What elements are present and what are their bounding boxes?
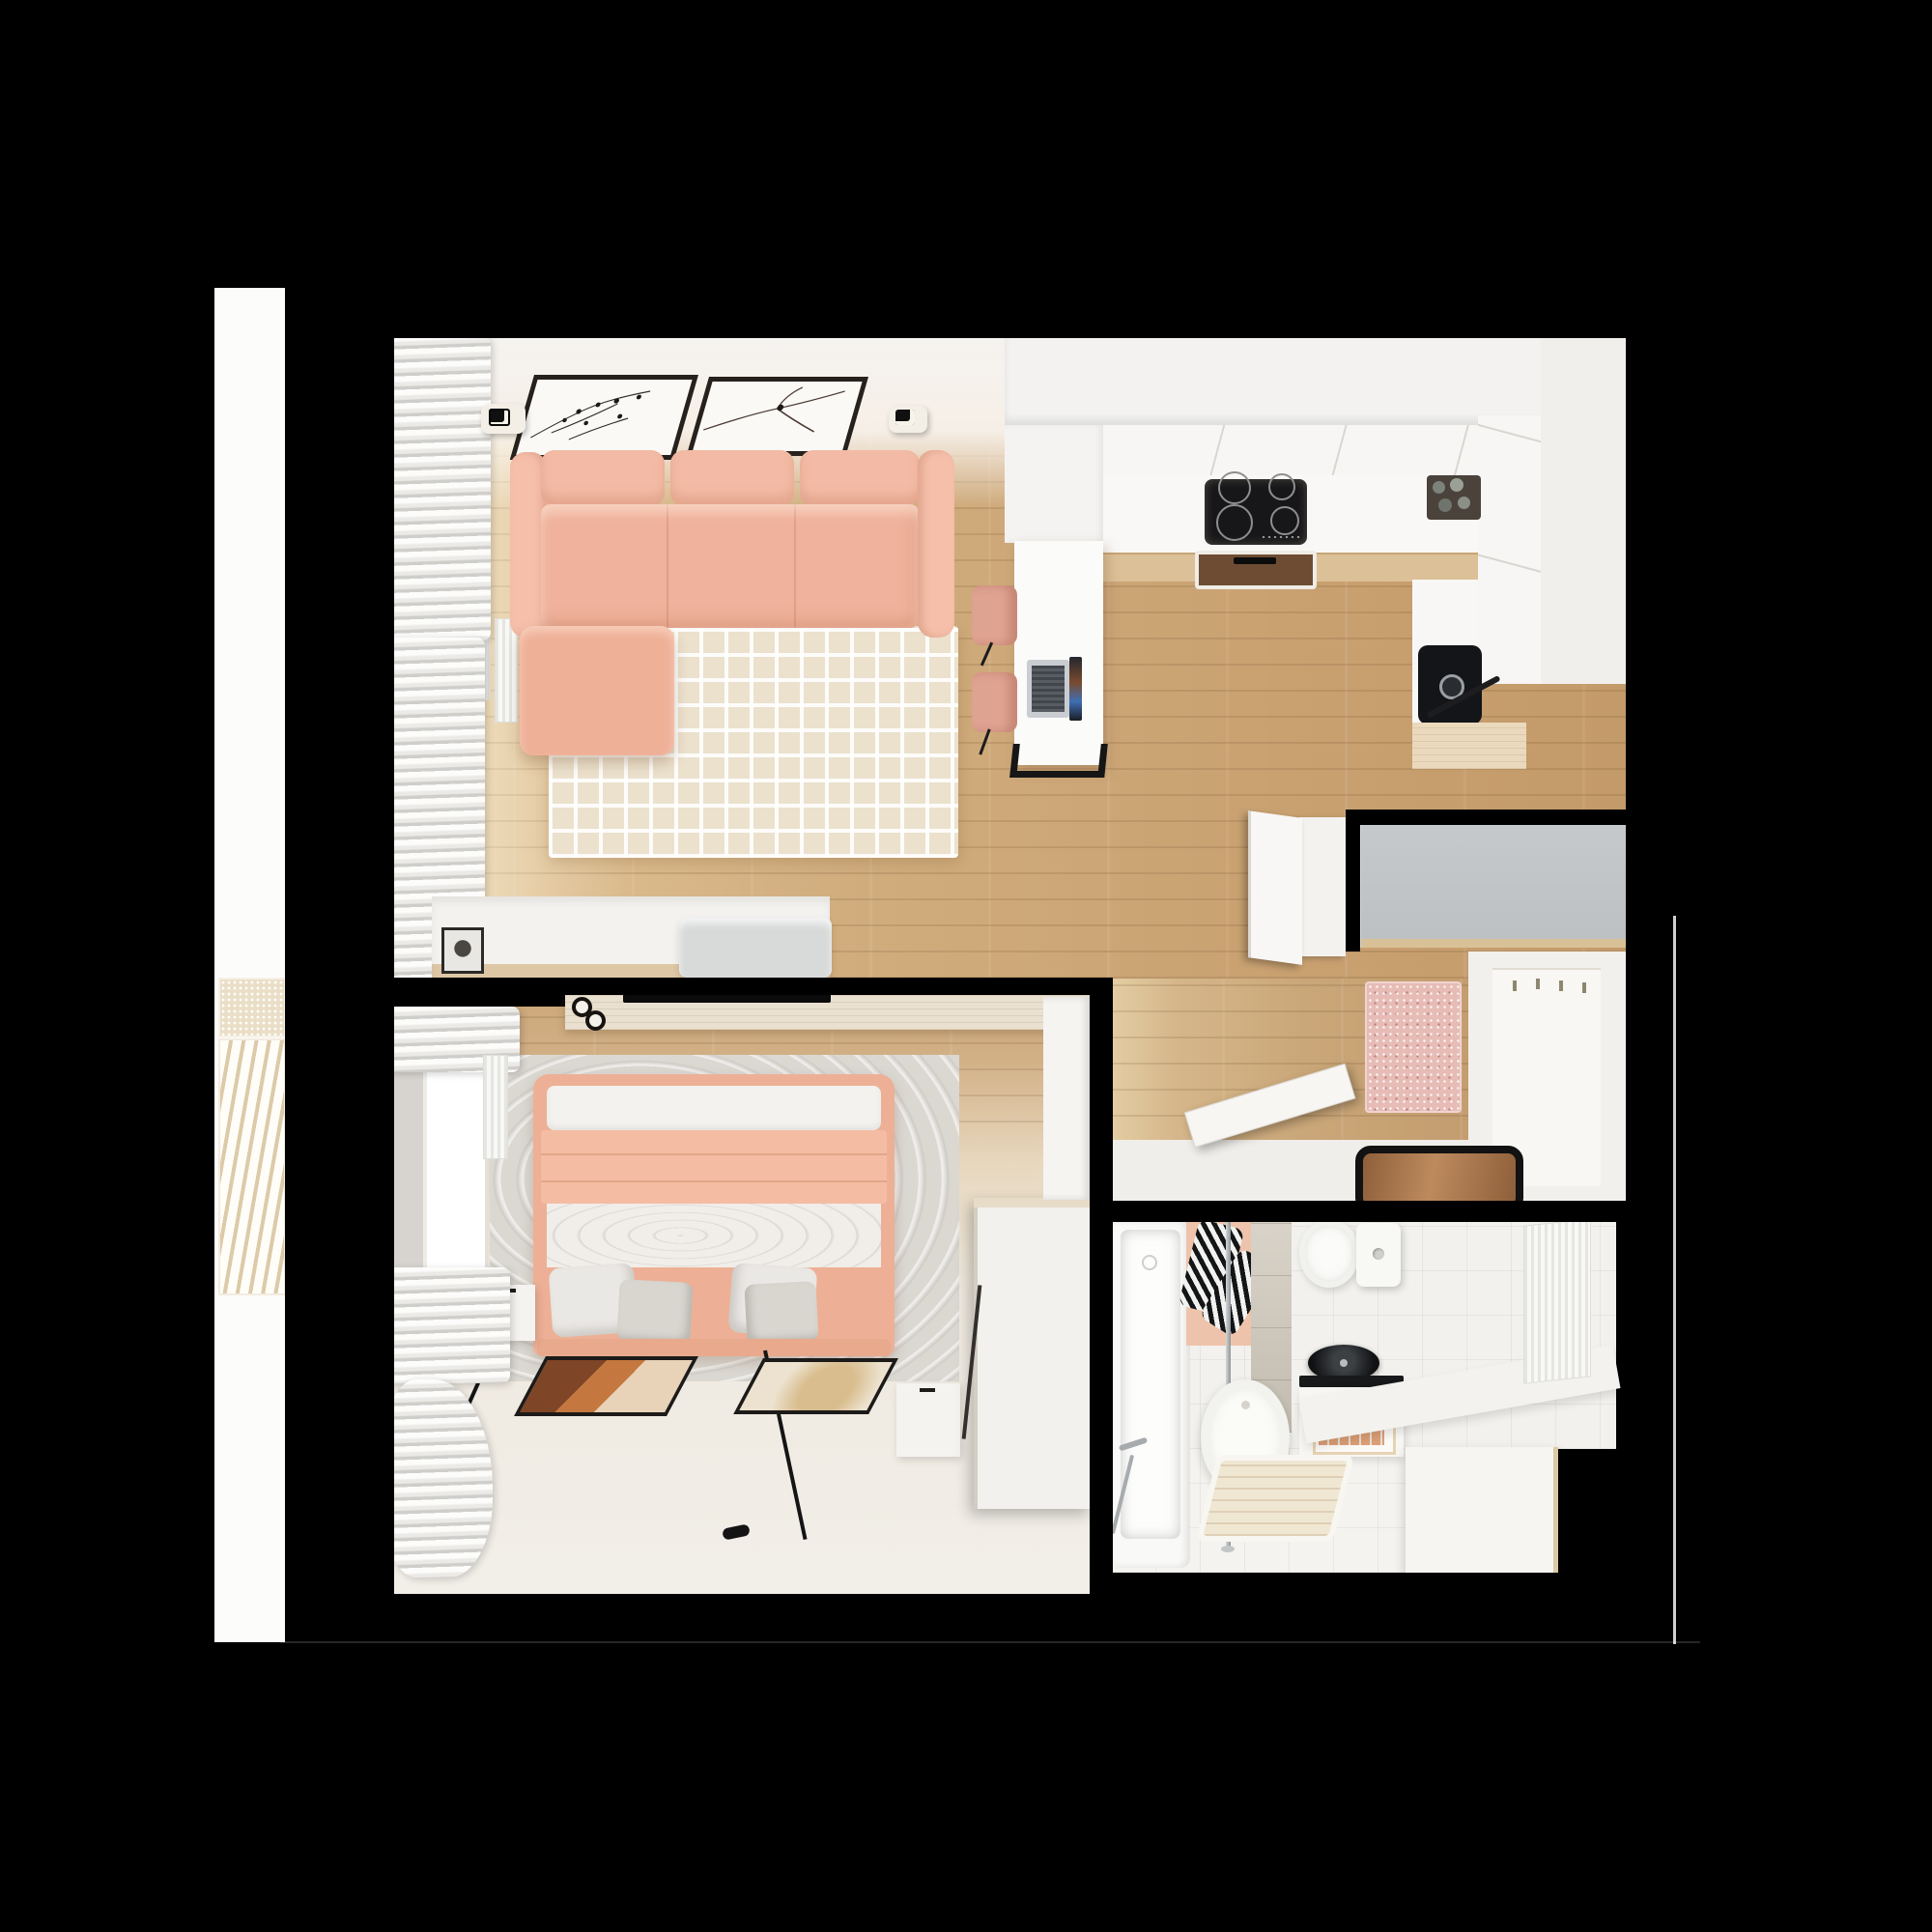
wall-art-birds <box>510 375 698 460</box>
flush-button <box>1373 1248 1384 1260</box>
bathtub-basin <box>1121 1230 1180 1539</box>
induction-cooktop <box>1205 479 1307 545</box>
kitchen-right-fronts <box>1478 415 1541 684</box>
cooktop-controls <box>1261 535 1301 539</box>
bedroom-window <box>390 1053 489 1280</box>
peninsula-tall-unit <box>1005 425 1103 543</box>
laptop-screen <box>1069 657 1082 721</box>
burner-3 <box>1216 504 1253 541</box>
hall-cabinet <box>1299 817 1346 956</box>
burner-4 <box>1270 506 1299 535</box>
bedroom-wardrobe <box>974 1198 1092 1509</box>
wall-right <box>1626 285 1655 1642</box>
jar-3 <box>1438 498 1452 512</box>
chair-hole <box>1241 1401 1250 1409</box>
floor-art-terracotta <box>514 1356 698 1416</box>
sofa-back-cushion-2 <box>670 450 794 506</box>
sofa-chaise <box>520 626 674 755</box>
extractor-slot <box>1234 557 1276 564</box>
bed-mattress-top <box>547 1086 881 1130</box>
sink-cabinet-front <box>1412 723 1526 769</box>
corner-tray <box>1427 475 1481 520</box>
coat-hook-1 <box>1513 980 1517 991</box>
balcony-slat-screen <box>218 1038 286 1295</box>
jar-1 <box>1433 481 1445 494</box>
frame-line-horizontal <box>280 1641 1700 1643</box>
coat-hook-4 <box>1582 982 1586 993</box>
shower-pole-foot <box>1221 1546 1235 1552</box>
wall-closet-top <box>1346 810 1626 825</box>
balcony-floor <box>214 288 287 1642</box>
gray-top-closet <box>1359 824 1626 948</box>
candle-knob-2 <box>585 1010 606 1031</box>
gray-bench <box>679 918 832 978</box>
sofa-seat <box>541 504 920 628</box>
branch-art <box>696 382 853 441</box>
portrait-photo-frame <box>441 927 484 974</box>
balcony-perforated-panel <box>218 978 286 1037</box>
burner-1 <box>1218 471 1251 504</box>
sofa-armrest-right <box>918 450 954 638</box>
nightstand-right-handle <box>920 1388 935 1392</box>
sofa-back-cushion-3 <box>800 450 920 506</box>
kitchen-upper-fronts <box>1103 425 1478 475</box>
bed-blanket <box>541 1130 887 1204</box>
bed-foot-band <box>537 1339 891 1356</box>
pillow-left-front <box>616 1279 693 1345</box>
laptop-keyboard <box>1032 666 1065 712</box>
basin-drain-chrome <box>1340 1359 1348 1367</box>
wall-hall-bathroom <box>1111 1201 1626 1222</box>
wall-top <box>285 285 1626 338</box>
jar-2 <box>1450 478 1463 492</box>
wall-bottom-bedroom <box>285 1594 1113 1647</box>
kitchen-right-wall-face <box>1541 336 1626 684</box>
coat-hook-3 <box>1559 980 1563 991</box>
wall-living-bedroom <box>285 978 1113 995</box>
living-radiator <box>495 618 518 723</box>
pillow-right-front <box>744 1281 818 1345</box>
peninsula-counter <box>1014 541 1103 765</box>
kitchen-tall-cabinets <box>1005 336 1626 425</box>
coat-hook-2 <box>1536 979 1540 989</box>
bed-duvet <box>547 1204 881 1267</box>
wall-art-branch <box>686 377 868 456</box>
wall-closet-side <box>1346 810 1360 952</box>
wall-bedroom-hall <box>1090 978 1113 1602</box>
bedroom-door-leaf <box>1043 997 1092 1200</box>
peninsula-legs <box>1009 744 1108 778</box>
extractor-hood-inset <box>1195 551 1317 589</box>
hall-cabinet-open-door <box>1248 810 1302 965</box>
jar-4 <box>1458 497 1470 509</box>
toilet-cistern <box>1356 1223 1401 1287</box>
toilet-bowl <box>1299 1220 1359 1288</box>
birds-branch-art <box>519 380 682 445</box>
spotlight-lens <box>895 410 915 425</box>
bedroom-radiator <box>483 1055 508 1159</box>
frame-line-vertical <box>1673 916 1676 1644</box>
living-curtain-top <box>384 336 491 640</box>
bedroom-curtain-mid <box>384 1267 510 1383</box>
ceiling-spotlight-right <box>889 406 927 433</box>
floorplan-render <box>0 0 1932 1932</box>
wooden-shower-tray <box>1196 1455 1354 1542</box>
spotlight-lens <box>489 409 510 426</box>
laptop <box>1027 657 1085 721</box>
bathtub-drain <box>1142 1255 1157 1270</box>
wall-left <box>285 285 394 1642</box>
towel-radiator <box>1523 1218 1591 1383</box>
bathtub <box>1111 1220 1190 1568</box>
sofa-back-cushion-1 <box>541 450 665 506</box>
hallway-pink-rug <box>1367 983 1460 1111</box>
nightstand-right <box>896 1383 960 1457</box>
bar-chair-1 <box>972 585 1017 645</box>
burner-2 <box>1268 473 1295 500</box>
ceiling-spotlight-left <box>481 404 526 434</box>
bar-chair-2 <box>972 672 1017 732</box>
wall-bottom-bathroom <box>1090 1573 1631 1647</box>
washer-cabinet <box>1406 1447 1558 1573</box>
